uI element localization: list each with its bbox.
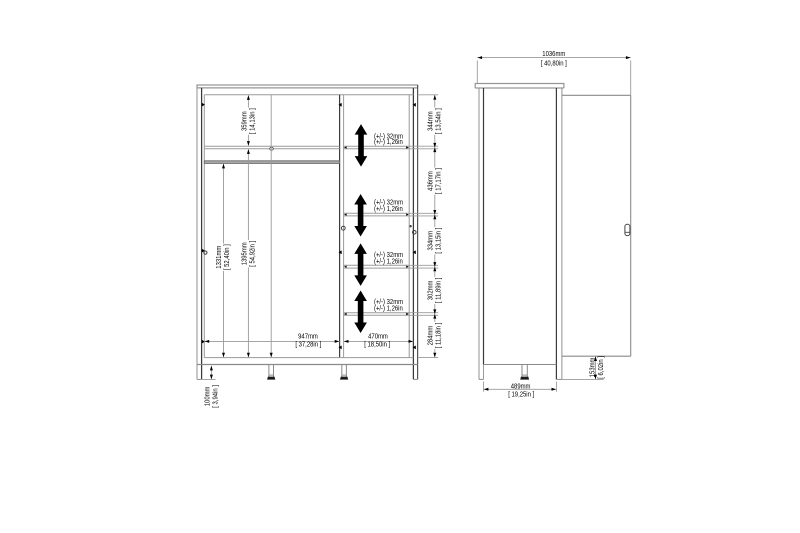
svg-text:[ 6,02in ]: [ 6,02in ] [597, 356, 605, 379]
svg-text:[ 17,17in ]: [ 17,17in ] [435, 168, 443, 194]
svg-text:334mm: 334mm [427, 230, 435, 250]
svg-text:[ 14,13in ]: [ 14,13in ] [249, 108, 257, 134]
svg-text:[ 18,50in ]: [ 18,50in ] [364, 341, 390, 349]
svg-text:436mm: 436mm [427, 171, 435, 191]
svg-text:100mm: 100mm [204, 386, 212, 406]
svg-text:(+/-) 1,26in: (+/-) 1,26in [374, 258, 403, 266]
svg-text:[ 11,18in ]: [ 11,18in ] [435, 323, 443, 349]
svg-text:470mm: 470mm [368, 333, 388, 341]
svg-text:284mm: 284mm [427, 325, 435, 345]
svg-text:[ 52,40in ]: [ 52,40in ] [224, 244, 232, 270]
svg-text:[ 11,89in ]: [ 11,89in ] [435, 278, 443, 304]
svg-text:1331mm: 1331mm [215, 245, 223, 268]
svg-text:302mm: 302mm [427, 280, 435, 300]
svg-text:1036mm: 1036mm [542, 50, 565, 58]
svg-text:[ 13,15in ]: [ 13,15in ] [435, 228, 443, 254]
svg-text:153mm: 153mm [589, 357, 597, 377]
svg-text:1395mm: 1395mm [241, 242, 249, 265]
svg-text:(+/-) 1,26in: (+/-) 1,26in [374, 205, 403, 213]
svg-text:344mm: 344mm [427, 111, 435, 131]
svg-text:359mm: 359mm [241, 111, 249, 131]
svg-text:[ 54,92in ]: [ 54,92in ] [249, 241, 257, 267]
svg-text:(+/-) 1,26in: (+/-) 1,26in [374, 305, 403, 313]
svg-text:[ 40,80in ]: [ 40,80in ] [541, 60, 567, 68]
svg-text:[ 37,28in ]: [ 37,28in ] [295, 341, 321, 349]
svg-text:(+/-) 1,26in: (+/-) 1,26in [374, 138, 403, 146]
svg-text:[ 3,94in ]: [ 3,94in ] [212, 385, 220, 408]
svg-text:[ 19,25in ]: [ 19,25in ] [508, 391, 534, 399]
svg-text:947mm: 947mm [298, 333, 318, 341]
svg-text:489mm: 489mm [511, 383, 531, 391]
svg-text:[ 13,54in ]: [ 13,54in ] [435, 108, 443, 134]
